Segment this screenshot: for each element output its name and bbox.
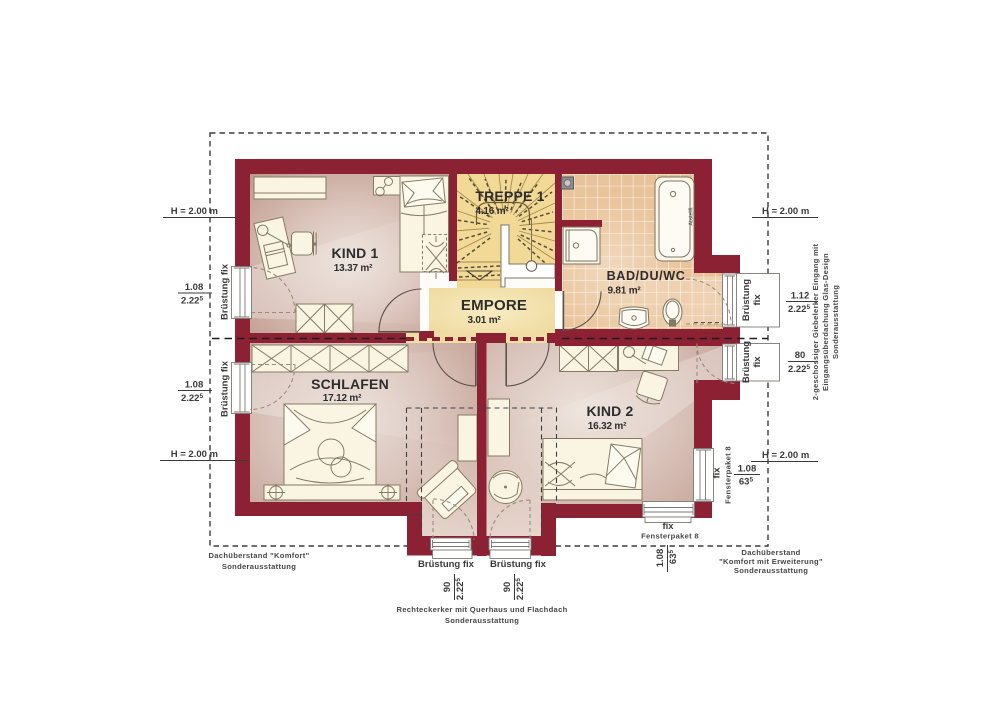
svg-text:Fensterpaket 8: Fensterpaket 8	[641, 532, 699, 541]
svg-text:Abstellfl.: Abstellfl.	[689, 207, 695, 226]
svg-text:Sonderausstattung: Sonderausstattung	[445, 616, 519, 625]
svg-text:"Komfort mit Erweiterung": "Komfort mit Erweiterung"	[719, 557, 823, 566]
svg-text:90: 90	[502, 582, 513, 593]
svg-text:KIND 2: KIND 2	[586, 403, 633, 419]
svg-text:EMPORE: EMPORE	[461, 297, 527, 314]
svg-text:2-geschossiger Giebelerker Ein: 2-geschossiger Giebelerker Eingang mit	[811, 244, 820, 401]
svg-text:17.12 m²: 17.12 m²	[323, 393, 362, 404]
svg-text:fix: fix	[752, 356, 763, 368]
svg-text:90: 90	[442, 582, 453, 593]
svg-text:9.81 m²: 9.81 m²	[607, 286, 641, 297]
svg-text:Sonderausstattung: Sonderausstattung	[734, 566, 808, 575]
svg-text:1.08: 1.08	[655, 549, 666, 568]
svg-text:Brüstung fix: Brüstung fix	[220, 263, 231, 320]
svg-text:1.08: 1.08	[185, 380, 204, 391]
svg-text:1.08: 1.08	[185, 282, 204, 293]
svg-text:Brüstung: Brüstung	[741, 279, 752, 321]
svg-text:TREPPE 1: TREPPE 1	[475, 188, 544, 204]
svg-text:Sonderausstattung: Sonderausstattung	[831, 285, 840, 359]
svg-text:Brüstung: Brüstung	[741, 341, 752, 383]
svg-text:1.12: 1.12	[791, 291, 810, 302]
svg-text:fix: fix	[712, 467, 723, 479]
svg-text:13.37 m²: 13.37 m²	[334, 263, 373, 274]
svg-text:3.01 m²: 3.01 m²	[467, 315, 501, 326]
svg-text:SCHLAFEN: SCHLAFEN	[311, 376, 389, 392]
svg-text:Dachüberstand: Dachüberstand	[741, 548, 800, 557]
svg-text:fix: fix	[752, 294, 763, 306]
svg-text:80: 80	[795, 350, 806, 361]
svg-text:16.32 m²: 16.32 m²	[588, 421, 627, 432]
svg-text:KIND 1: KIND 1	[331, 245, 378, 261]
svg-text:Brüstung fix: Brüstung fix	[220, 360, 231, 417]
svg-text:fix: fix	[662, 521, 674, 532]
svg-text:Rechteckerker mit Querhaus und: Rechteckerker mit Querhaus und Flachdach	[396, 605, 567, 614]
svg-text:H = 2.00 m: H = 2.00 m	[762, 206, 809, 217]
svg-text:Brüstung fix: Brüstung fix	[490, 559, 547, 570]
svg-text:H = 2.00 m: H = 2.00 m	[171, 449, 218, 460]
svg-text:H = 2.00 m: H = 2.00 m	[762, 450, 809, 461]
svg-text:Sonderausstattung: Sonderausstattung	[222, 562, 296, 571]
svg-text:Fensterpaket 8: Fensterpaket 8	[724, 446, 733, 504]
svg-text:1.08: 1.08	[738, 464, 757, 475]
svg-text:Dachüberstand "Komfort": Dachüberstand "Komfort"	[208, 551, 309, 560]
svg-text:BAD/DU/WC: BAD/DU/WC	[607, 269, 686, 283]
svg-text:4.16 m²: 4.16 m²	[475, 206, 509, 217]
svg-text:Brüstung fix: Brüstung fix	[418, 559, 475, 570]
svg-text:H = 2.00 m: H = 2.00 m	[171, 206, 218, 217]
svg-text:Eingangsüberdachung Glas-Desig: Eingangsüberdachung Glas-Design	[821, 253, 830, 391]
